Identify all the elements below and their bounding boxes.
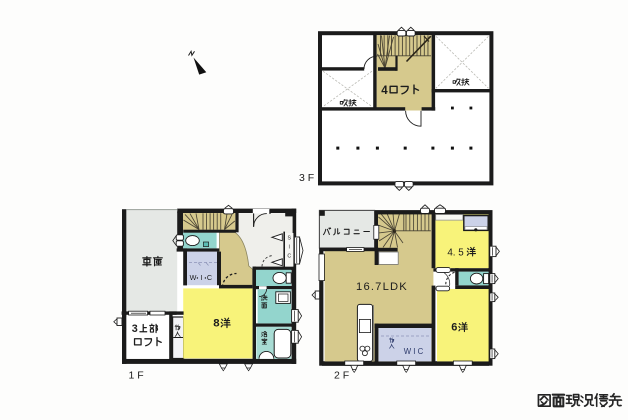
svg-text:1 F: 1 F <box>129 370 144 382</box>
svg-text:16.7LDK: 16.7LDK <box>356 281 408 293</box>
svg-text:I: I <box>288 245 289 251</box>
svg-text:6: 6 <box>451 322 457 334</box>
svg-text:C: C <box>287 254 291 260</box>
svg-text:4: 4 <box>381 85 388 97</box>
svg-text:I: I <box>201 273 203 282</box>
svg-text:C: C <box>207 273 212 282</box>
svg-text:2 F: 2 F <box>334 370 349 382</box>
svg-text:4. 5: 4. 5 <box>447 248 464 259</box>
svg-text:W: W <box>190 273 197 282</box>
svg-text:3 F: 3 F <box>299 172 314 184</box>
svg-text:S: S <box>287 236 291 242</box>
svg-text:8: 8 <box>213 318 219 330</box>
svg-text:3: 3 <box>132 323 138 335</box>
svg-text:W I C: W I C <box>404 347 424 356</box>
